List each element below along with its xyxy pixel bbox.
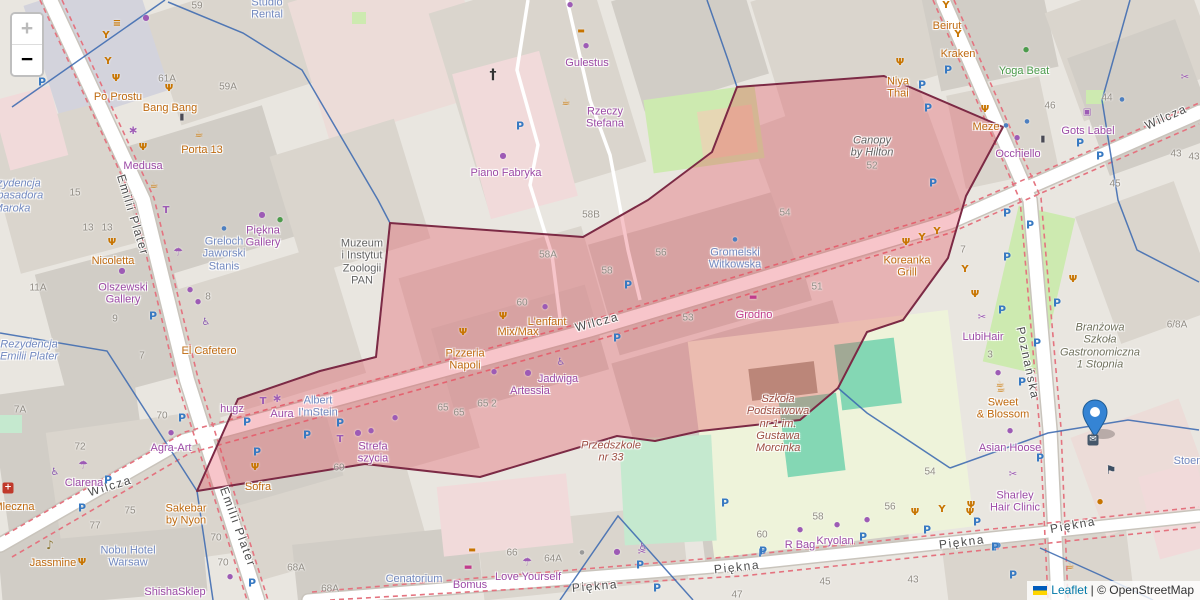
map-canvas[interactable]: WilczaWilczaWilczaEmilii PlaterEmilii Pl… — [0, 0, 1200, 600]
landuse-patch — [0, 415, 22, 433]
landuse-patch — [352, 12, 366, 24]
marker-pin-hole — [1090, 407, 1100, 417]
zoom-control: + − — [10, 12, 44, 77]
ukraine-flag-icon — [1033, 586, 1047, 595]
osm-attribution-link[interactable]: © OpenStreetMap — [1097, 583, 1194, 597]
map-tiles — [0, 0, 1200, 600]
attribution-bar: Leaflet | © OpenStreetMap — [1027, 581, 1200, 600]
landuse-patch — [1086, 90, 1104, 104]
zoom-out-button[interactable]: − — [12, 45, 42, 75]
landuse-patch — [619, 435, 716, 546]
leaflet-link[interactable]: Leaflet — [1051, 583, 1087, 597]
attribution-separator: | — [1087, 583, 1097, 597]
landuse-patch — [437, 473, 574, 556]
zoom-in-button[interactable]: + — [12, 14, 42, 45]
